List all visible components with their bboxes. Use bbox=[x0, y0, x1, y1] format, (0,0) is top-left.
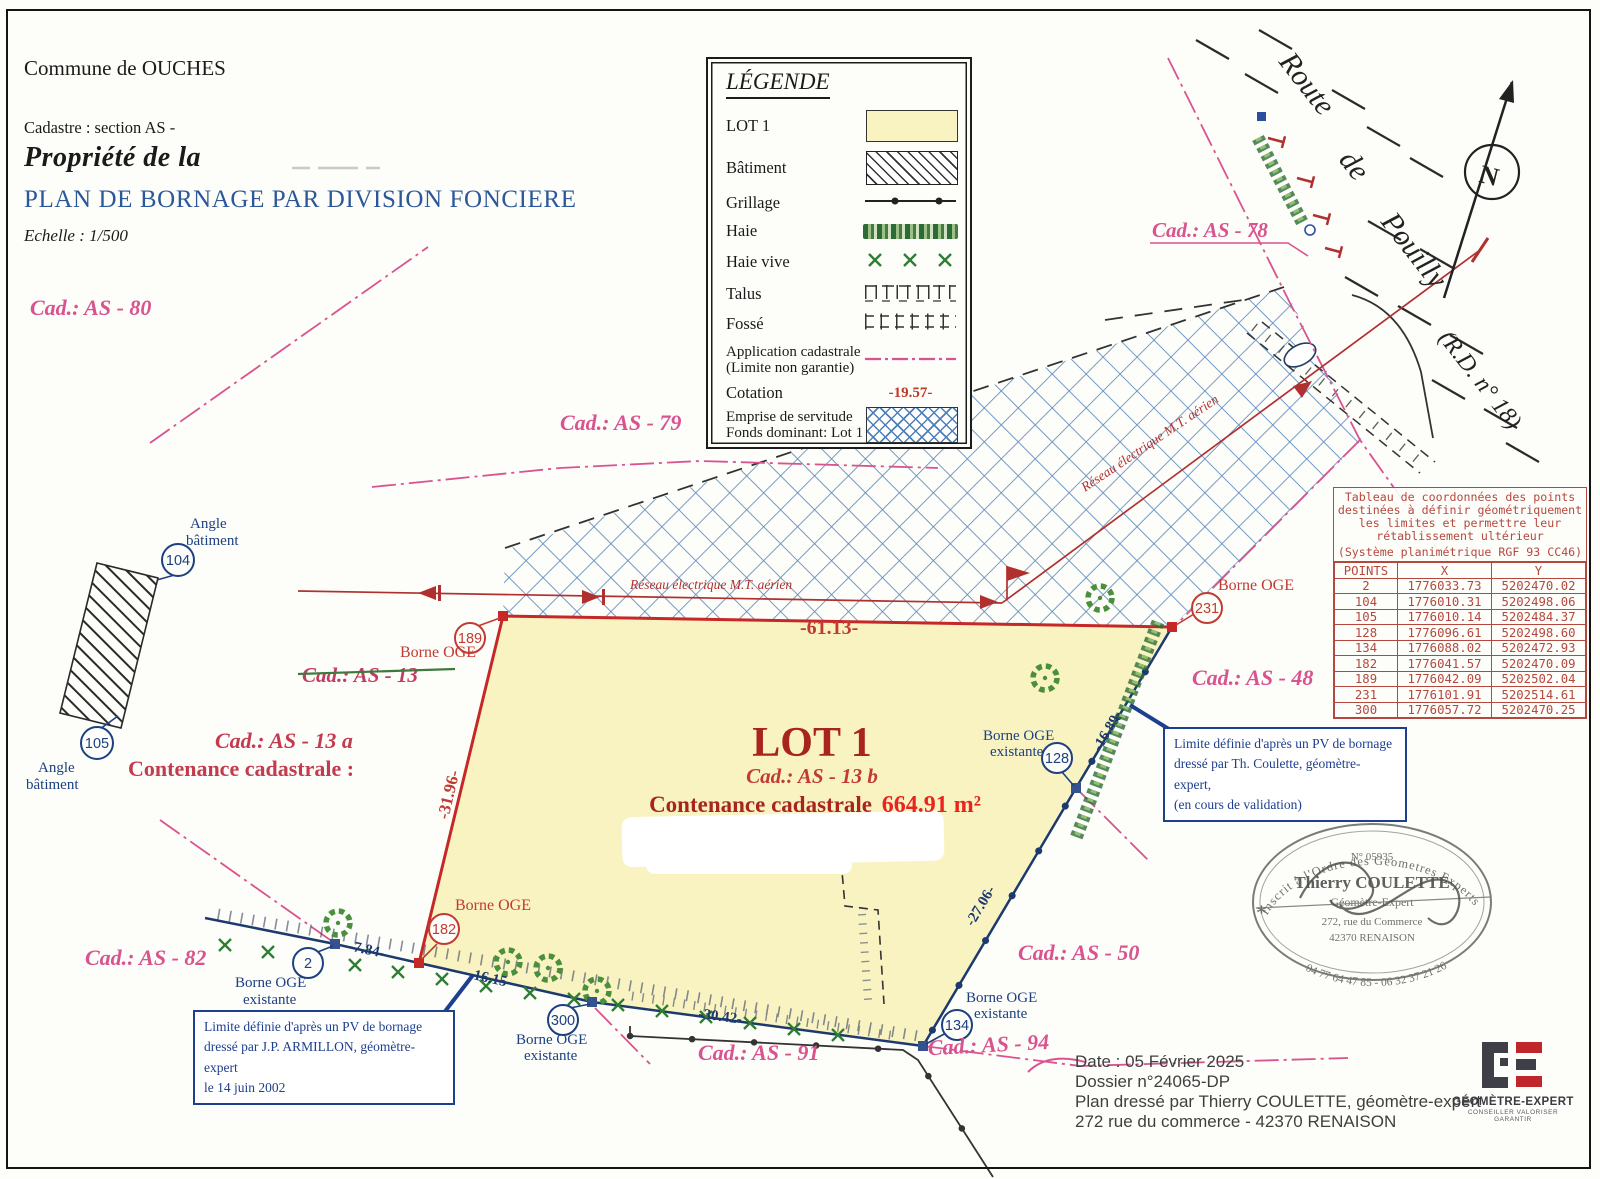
plan-author: Plan dressé par Thierry COULETTE, géomèt… bbox=[1075, 1092, 1481, 1112]
svg-text:Borne OGE: Borne OGE bbox=[1218, 577, 1294, 594]
page-title: PLAN DE BORNAGE PAR DIVISION FONCIERE bbox=[24, 186, 577, 214]
svg-text:Borne OGE: Borne OGE bbox=[400, 644, 476, 661]
legend-item-cotation: Cotation -19.57- bbox=[726, 381, 958, 405]
coordinates-table: Tableau de coordonnées des points destin… bbox=[1333, 487, 1587, 719]
logo-tagline: CONSEILLER VALORISER GARANTIR bbox=[1448, 1109, 1578, 1123]
svg-text:Route: Route bbox=[1272, 45, 1342, 121]
note-coulette: Limite définie d'après un PV de bornage … bbox=[1163, 727, 1407, 822]
table-row: 1281776096.615202498.60 bbox=[1335, 625, 1586, 641]
legend-box: LÉGENDE LOT 1 Bâtiment Grillage Haie Hai… bbox=[706, 57, 972, 449]
svg-text:Cad.: AS - 91: Cad.: AS - 91 bbox=[698, 1040, 819, 1065]
table-row: 1051776010.145202484.37 bbox=[1335, 609, 1586, 625]
svg-text:Borne OGE: Borne OGE bbox=[455, 897, 531, 914]
legend-item-talus: Talus bbox=[726, 281, 958, 307]
fosse-swatch bbox=[863, 311, 958, 338]
marker-square-blue-top bbox=[1257, 112, 1266, 121]
application-cadastrale-swatch bbox=[863, 351, 958, 369]
svg-text:Cad.: AS - 79: Cad.: AS - 79 bbox=[560, 410, 681, 435]
svg-text:Cad.: AS - 13: Cad.: AS - 13 bbox=[302, 663, 418, 687]
ge-monogram-icon bbox=[1482, 1042, 1544, 1088]
point-2: 2 bbox=[304, 956, 312, 972]
cadastre-section: Cadastre : section AS - bbox=[24, 118, 175, 138]
point-105: 105 bbox=[85, 736, 109, 752]
point-134: 134 bbox=[945, 1018, 969, 1034]
logo-name: GÉOMÈTRE-EXPERT bbox=[1448, 1096, 1578, 1108]
svg-text:existante: existante bbox=[243, 992, 297, 1008]
svg-text:Cad.: AS - 78: Cad.: AS - 78 bbox=[1152, 218, 1268, 242]
svg-text:Cad.: AS - 82: Cad.: AS - 82 bbox=[85, 945, 206, 970]
haie-swatch bbox=[863, 224, 958, 239]
survey-plan-page: N bbox=[0, 0, 1600, 1179]
legend-item-batiment: Bâtiment bbox=[726, 151, 958, 185]
geometre-expert-logo: GÉOMÈTRE-EXPERT CONSEILLER VALORISER GAR… bbox=[1448, 1042, 1578, 1123]
svg-text:bâtiment: bâtiment bbox=[26, 777, 79, 793]
lot1-cad: Cad.: AS - 13 b bbox=[746, 764, 878, 788]
scale-label: Echelle : 1/500 bbox=[24, 226, 128, 246]
stamp-addr1: 272, rue du Commerce bbox=[1322, 916, 1423, 928]
as78-underline bbox=[1150, 243, 1308, 256]
lot1-title: LOT 1 bbox=[752, 720, 871, 766]
point-104: 104 bbox=[166, 553, 190, 569]
svg-text:Contenance cadastrale: Contenance cadastrale 664.91 m² bbox=[649, 792, 981, 818]
lot1-area: 664.91 m² bbox=[882, 792, 981, 818]
point-182: 182 bbox=[432, 922, 456, 938]
table-header-row: POINTSXY bbox=[1335, 563, 1586, 579]
svg-text:Borne OGE: Borne OGE bbox=[516, 1032, 587, 1048]
stamp-addr2: 42370 RENAISON bbox=[1329, 932, 1415, 944]
plan-date: Date : 05 Février 2025 bbox=[1075, 1052, 1481, 1072]
table-row: 1341776088.025202472.93 bbox=[1335, 640, 1586, 656]
emprise-swatch bbox=[866, 407, 958, 443]
svg-text:Angle: Angle bbox=[190, 516, 227, 532]
table-row: 3001776057.725202470.25 bbox=[1335, 702, 1586, 718]
point-231: 231 bbox=[1195, 601, 1219, 617]
batiment-swatch bbox=[866, 151, 958, 185]
svg-text:existante: existante bbox=[524, 1048, 578, 1064]
power-pole-symbols bbox=[1266, 132, 1342, 258]
north-letter: N bbox=[1476, 159, 1501, 192]
point-300: 300 bbox=[551, 1013, 575, 1029]
stamp-number: N° 05935 bbox=[1351, 851, 1394, 863]
svg-text:Cad.: AS - 48: Cad.: AS - 48 bbox=[1192, 665, 1313, 690]
svg-text:existante: existante bbox=[974, 1006, 1028, 1022]
note-armillon: Limite définie d'après un PV de bornage … bbox=[193, 1010, 455, 1105]
legend-title: LÉGENDE bbox=[726, 69, 830, 99]
svg-text:Angle: Angle bbox=[38, 760, 75, 776]
lot1-swatch bbox=[866, 110, 958, 142]
author-address: 272 rue du commerce - 42370 RENAISON bbox=[1075, 1112, 1481, 1132]
legend-item-fosse: Fossé bbox=[726, 311, 958, 337]
svg-text:Cad.: AS - 80: Cad.: AS - 80 bbox=[30, 295, 151, 320]
point-128: 128 bbox=[1045, 751, 1069, 767]
table-row: 1821776041.575202470.09 bbox=[1335, 656, 1586, 672]
svg-text:Borne OGE: Borne OGE bbox=[983, 728, 1054, 744]
haie-vive-swatch bbox=[863, 250, 958, 275]
table-row: 1891776042.095202502.04 bbox=[1335, 671, 1586, 687]
table-row: 1041776010.315202498.06 bbox=[1335, 594, 1586, 610]
svg-text:Borne OGE: Borne OGE bbox=[966, 990, 1037, 1006]
svg-text:Cad.: AS - 94: Cad.: AS - 94 bbox=[927, 1029, 1050, 1060]
legend-item-lot1: LOT 1 bbox=[726, 109, 958, 143]
legend-item-haie-vive: Haie vive bbox=[726, 249, 958, 275]
table-row: 2311776101.915202514.61 bbox=[1335, 687, 1586, 703]
table-row: 21776033.735202470.02 bbox=[1335, 578, 1586, 594]
dim-top: -61.13- bbox=[800, 617, 858, 639]
building-hatched bbox=[60, 563, 158, 728]
table-subtitle: (Système planimétrique RGF 93 CC46) bbox=[1334, 544, 1586, 562]
cotation-sample: -19.57- bbox=[863, 385, 958, 402]
grillage-swatch bbox=[863, 194, 958, 212]
legend-item-emprise: Emprise de servitude Fonds dominant: Lot… bbox=[726, 405, 958, 445]
legend-item-haie: Haie bbox=[726, 219, 958, 243]
footer-block: Date : 05 Février 2025 Dossier n°24065-D… bbox=[1075, 1052, 1481, 1132]
talus-swatch bbox=[863, 280, 958, 309]
svg-text:de: de bbox=[1332, 144, 1375, 187]
svg-text:bâtiment: bâtiment bbox=[186, 533, 239, 549]
surveyor-stamp: Inscrit à l'Ordre des Geometres Experts … bbox=[1253, 824, 1491, 989]
svg-text:Cad.: AS - 13 a: Cad.: AS - 13 a bbox=[215, 728, 353, 753]
svg-text:Cad.: AS - 50: Cad.: AS - 50 bbox=[1018, 940, 1139, 965]
legend-item-grillage: Grillage bbox=[726, 191, 958, 215]
commune-title: Commune de OUCHES bbox=[24, 56, 226, 81]
svg-text:Pouilly: Pouilly bbox=[1374, 205, 1454, 295]
dossier-number: Dossier n°24065-DP bbox=[1075, 1072, 1481, 1092]
svg-text:Contenance cadastrale :: Contenance cadastrale : bbox=[128, 756, 354, 781]
north-arrow: N bbox=[1444, 80, 1519, 298]
legend-item-application: Application cadastrale (Limite non garan… bbox=[726, 341, 958, 379]
svg-text:(R.D. n° 18): (R.D. n° 18) bbox=[1433, 326, 1526, 435]
dim-b1: -7.84- bbox=[347, 938, 386, 961]
svg-text:existante: existante bbox=[990, 744, 1044, 760]
road-point-circle bbox=[1305, 225, 1315, 235]
svg-text:*: * bbox=[1256, 900, 1267, 925]
svg-text:Réseau électrique M.T. aérien: Réseau électrique M.T. aérien bbox=[629, 577, 792, 592]
propriete-line: Propriété de la bbox=[24, 142, 201, 174]
svg-text:Borne OGE: Borne OGE bbox=[235, 975, 306, 991]
lot1-contenance-label: Contenance cadastrale bbox=[649, 792, 872, 817]
